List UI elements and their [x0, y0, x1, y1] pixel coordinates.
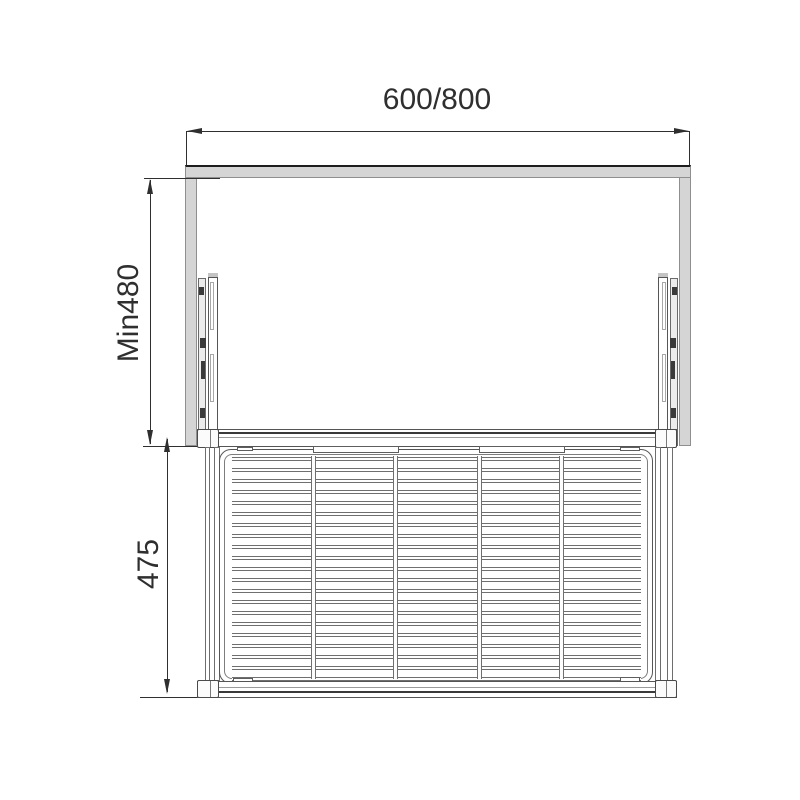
basket-wire-vertical: [559, 456, 564, 679]
basket-wire-horizontal: [232, 468, 641, 472]
frame-side-member: [205, 447, 210, 681]
basket-wire-horizontal: [232, 534, 641, 538]
basket-wire-horizontal: [232, 512, 641, 516]
basket-hook-tab: [479, 446, 565, 453]
cabinet-left-wall: [185, 178, 197, 446]
width-dimension-label: 600/800: [357, 84, 517, 116]
basket-wire-horizontal: [232, 490, 641, 494]
basket-wire-horizontal: [232, 545, 641, 549]
rail-clip: [672, 287, 677, 295]
height-dim-arrow-up-icon: [147, 179, 153, 194]
cabinet-top-panel: [185, 165, 691, 178]
basket-wire-horizontal: [232, 644, 641, 648]
frame-side-member: [655, 447, 661, 681]
width-dim-arrow-left-icon: [187, 128, 202, 134]
basket-hook-tab: [237, 447, 253, 451]
basket-wire-horizontal: [232, 611, 641, 615]
rail-clip: [670, 338, 676, 348]
basket-hook-tab: [620, 447, 640, 451]
basket-wire-horizontal: [232, 523, 641, 527]
frame-bottom-rail-line: [199, 691, 675, 693]
rail-clip: [200, 338, 206, 348]
height-dimension-line: [150, 180, 151, 444]
unit-height-dimension-label: 475: [133, 489, 165, 639]
basket-wire-horizontal: [232, 567, 641, 571]
rail-clip: [201, 361, 205, 379]
height-dim-arrow-down-icon: [147, 430, 153, 445]
basket-wire-horizontal: [232, 556, 641, 560]
rail-slot: [662, 354, 666, 402]
height-dim-extension-top: [144, 178, 220, 179]
rail-slot: [662, 282, 666, 330]
frame-bottom-rail-line: [199, 687, 675, 688]
cap-divider: [666, 681, 667, 697]
basket-wire-horizontal: [232, 501, 641, 505]
cap-divider: [210, 430, 211, 447]
width-dim-arrow-right-icon: [674, 128, 689, 134]
basket-wire-horizontal: [232, 589, 641, 593]
rail-slot: [210, 282, 214, 330]
rail-clip: [671, 408, 676, 418]
basket-wire-vertical: [393, 456, 398, 679]
cap-divider: [210, 681, 211, 697]
basket-wire-horizontal: [232, 633, 641, 637]
technical-drawing-canvas: 600/800 Min480 475: [0, 0, 800, 800]
cabinet-right-wall: [679, 178, 691, 446]
basket-wire-vertical: [477, 456, 482, 679]
width-dim-extension-right: [689, 131, 690, 166]
frame-top-cap-left: [197, 429, 219, 448]
frame-top-rail-line: [199, 437, 675, 438]
unit-dim-extension-bottom: [140, 697, 197, 698]
basket-wire-horizontal: [232, 578, 641, 582]
basket-wire-horizontal: [232, 622, 641, 626]
frame-top-rail-line: [199, 432, 675, 434]
basket-hook-tab: [313, 446, 399, 453]
unit-dim-arrow-up-icon: [164, 437, 170, 452]
rail-clip: [671, 361, 675, 379]
height-dim-extension-bottom: [143, 446, 197, 447]
rail-end-cap: [208, 273, 218, 278]
frame-bottom-rail: [197, 681, 677, 698]
basket-wire-vertical: [311, 456, 316, 679]
frame-bottom-cap-left: [197, 680, 219, 698]
width-dim-extension-left: [186, 131, 187, 166]
unit-dim-arrow-down-icon: [164, 679, 170, 694]
rail-end-cap: [658, 273, 668, 278]
min-height-dimension-label: Min480: [113, 233, 145, 393]
basket-wire-horizontal: [232, 457, 641, 461]
rail-clip: [200, 408, 205, 418]
unit-dimension-line: [167, 439, 168, 692]
basket-wire-horizontal: [232, 479, 641, 483]
basket-wire-horizontal: [232, 655, 641, 659]
frame-side-member: [667, 447, 673, 681]
basket-wire-horizontal: [232, 600, 641, 604]
width-dimension-line: [187, 131, 689, 132]
cap-divider: [666, 430, 667, 447]
basket-wire-horizontal: [232, 666, 641, 670]
rail-clip: [199, 287, 204, 295]
rail-slot: [210, 354, 214, 402]
